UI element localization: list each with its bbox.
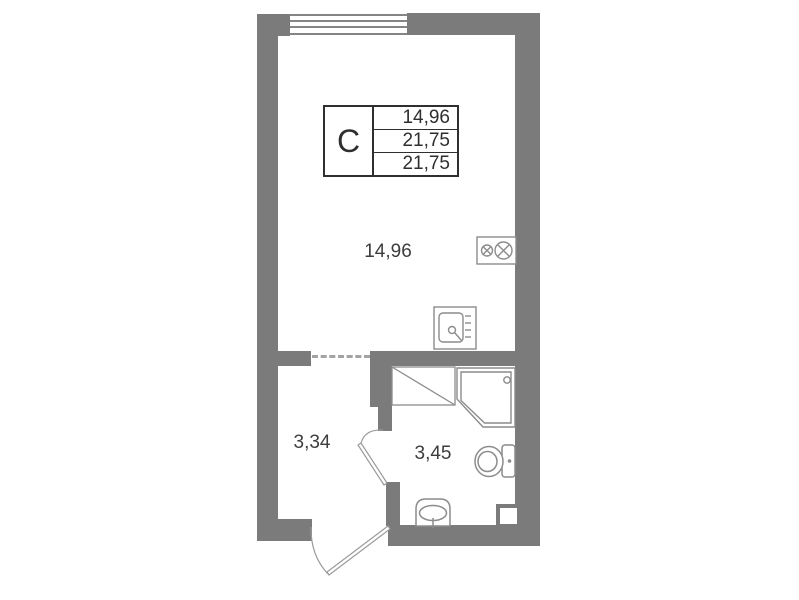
room-area-label-living: 14,96 bbox=[353, 241, 423, 263]
stove-icon bbox=[477, 237, 516, 264]
bathroom-door bbox=[358, 430, 387, 485]
room-area-label-bathroom: 3,45 bbox=[409, 443, 457, 465]
unit-letter: C bbox=[325, 107, 374, 175]
room-area-label-hallway: 3,34 bbox=[288, 432, 336, 454]
unit-info-row-3: 21,75 bbox=[374, 153, 457, 175]
washing-machine-icon bbox=[392, 367, 455, 405]
entry-door bbox=[311, 526, 390, 575]
toilet-icon bbox=[475, 445, 515, 477]
unit-info-box: C 14,96 21,75 21,75 bbox=[323, 105, 459, 177]
unit-info-rows: 14,96 21,75 21,75 bbox=[374, 107, 457, 175]
fixtures-layer bbox=[0, 0, 799, 600]
unit-info-row-2: 21,75 bbox=[374, 130, 457, 153]
shower-cabin-icon bbox=[457, 368, 515, 427]
floor-plan: C 14,96 21,75 21,75 14,96 3,34 3,45 bbox=[0, 0, 799, 600]
unit-info-row-1: 14,96 bbox=[374, 107, 457, 130]
washbasin-icon bbox=[416, 499, 450, 528]
kitchen-sink-icon bbox=[434, 307, 476, 349]
